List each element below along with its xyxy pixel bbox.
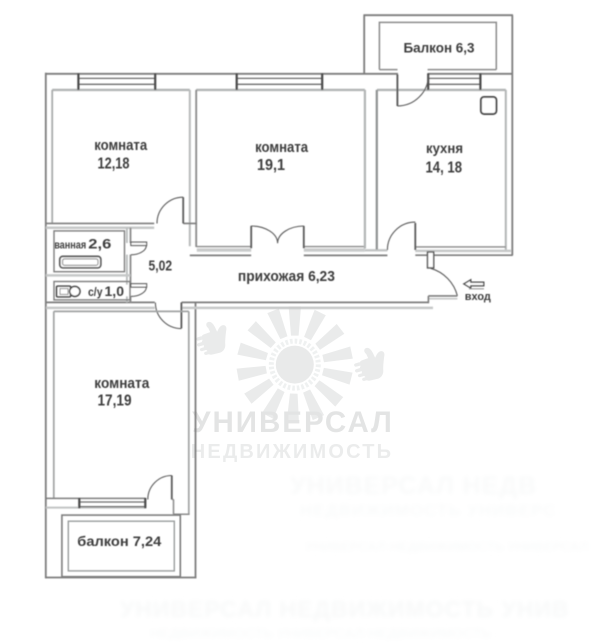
svg-text:балкон 7,24: балкон 7,24 [77,533,161,549]
svg-text:19,1: 19,1 [257,157,285,174]
svg-text:ванная: ванная [54,240,86,252]
svg-text:1,0: 1,0 [105,283,125,299]
svg-text:2,6: 2,6 [88,237,112,252]
svg-text:5,02: 5,02 [149,259,173,275]
svg-text:прихожая 6,23: прихожая 6,23 [238,269,335,285]
svg-text:УНИВЕРСАЛ НЕДВИЖИМОСТЬ УНИВЕРС: УНИВЕРСАЛ НЕДВИЖИМОСТЬ УНИВЕРСАЛ [305,539,589,554]
svg-text:комната: комната [255,139,309,156]
svg-text:УНИВЕРСАЛ НЕДВИЖИМОСТЬ УНИВ: УНИВЕРСАЛ НЕДВИЖИМОСТЬ УНИВ [120,596,570,622]
svg-text:Балкон 6,3: Балкон 6,3 [404,40,475,55]
svg-text:12,18: 12,18 [98,156,130,173]
svg-text:с/у: с/у [88,287,103,299]
svg-text:вход: вход [465,291,491,303]
svg-text:НЕДВИЖИМОСТЬ УНИВЕРСАЛ НЕДВИЖИ: НЕДВИЖИМОСТЬ УНИВЕРСАЛ НЕДВИЖИМОСТЬ [150,625,491,641]
svg-text:комната: комната [94,375,150,392]
svg-text:НЕДВИЖИМОСТЬ: НЕДВИЖИМОСТЬ [191,441,393,463]
svg-text:14, 18: 14, 18 [426,160,463,177]
svg-text:17,19: 17,19 [98,393,132,410]
svg-text:НЕДВИЖИМОСТЬ УНИВЕРС: НЕДВИЖИМОСТЬ УНИВЕРС [300,501,556,520]
svg-text:кухня: кухня [426,141,463,156]
svg-text:УНИВЕРСАЛ НЕДВ: УНИВЕРСАЛ НЕДВ [290,472,537,500]
svg-text:УНИВЕРСАЛ: УНИВЕРСАЛ [192,406,394,439]
svg-text:комната: комната [94,137,148,154]
